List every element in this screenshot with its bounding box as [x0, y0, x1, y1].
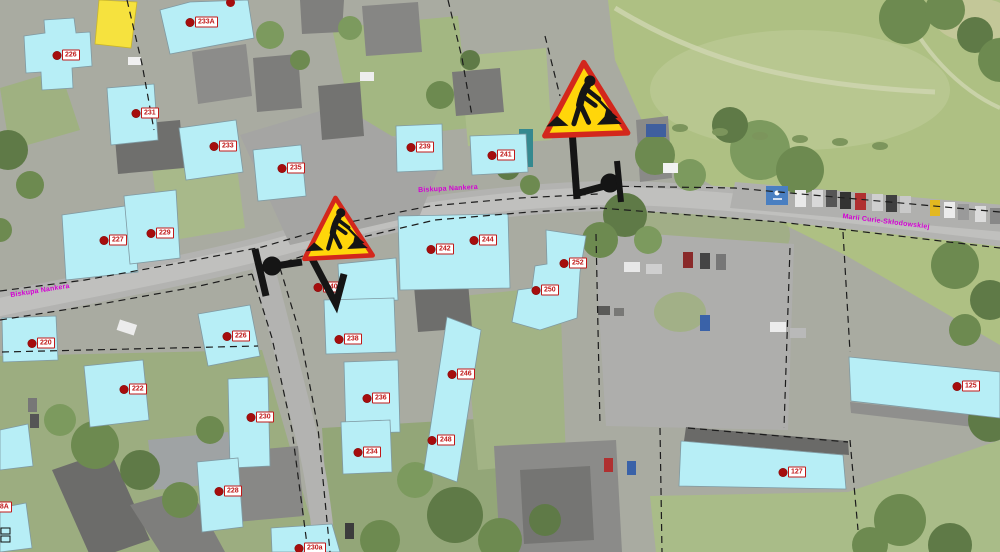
building-number-text: 233A: [195, 17, 218, 28]
building-number-text: 226: [62, 50, 80, 61]
building-point-icon: [779, 468, 787, 476]
aerial-background: [0, 0, 1000, 552]
building-number-text: 248: [437, 435, 455, 446]
building-number-text: 222: [129, 384, 147, 395]
building-point-icon: [448, 370, 456, 378]
building-number-text: 252: [569, 258, 587, 269]
building-number-text: 127: [788, 467, 806, 478]
roadworks-sign-icon: [297, 192, 376, 263]
building-number-text: 226: [232, 331, 250, 342]
building-label-230: 230: [247, 412, 274, 423]
building-label-18A: 18A: [0, 502, 12, 513]
building-label-250: 250: [532, 285, 559, 296]
roadworks-sign-icon: [538, 56, 633, 140]
building-number-text: 246: [457, 369, 475, 380]
building-point-icon: [247, 413, 255, 421]
building-label-220: 220: [28, 338, 55, 349]
building-point-icon: [363, 394, 371, 402]
building-label-226: 226: [223, 331, 250, 342]
building-label-233A: 233A: [186, 17, 218, 28]
building-number-text: 125: [962, 381, 980, 392]
building-number-text: 240: [323, 282, 341, 293]
building-number-text: 238: [344, 334, 362, 345]
building-number-text: 233: [219, 141, 237, 152]
building-number-text: 230: [256, 412, 274, 423]
building-point-icon: [120, 385, 128, 393]
building-number-text: 236: [372, 393, 390, 404]
building-point-icon: [223, 332, 231, 340]
building-label-125: 125: [953, 381, 980, 392]
building-number-text: 227: [109, 235, 127, 246]
building-label-238: 238: [335, 334, 362, 345]
building-point-icon: [488, 151, 496, 159]
building-number-text: 244: [479, 235, 497, 246]
building-label-240: 240: [314, 282, 341, 293]
building-point-icon: [953, 382, 961, 390]
building-number-text: 230a: [304, 543, 326, 552]
building-label-229: 229: [147, 228, 174, 239]
building-point-icon: [560, 259, 568, 267]
building-label-235: 235: [278, 163, 305, 174]
building-point-icon: [428, 436, 436, 444]
building-point-icon: [53, 51, 61, 59]
building-number-text: 241: [497, 150, 515, 161]
building-label-236: 236: [363, 393, 390, 404]
yellow-building-overlay: [95, 0, 137, 48]
building-label-234: 234: [354, 447, 381, 458]
building-point-icon: [215, 487, 223, 495]
building-number-text: 250: [541, 285, 559, 296]
building-label-127: 127: [779, 467, 806, 478]
building-number-text: 18A: [0, 502, 12, 513]
building-label-233: 233: [210, 141, 237, 152]
building-point-icon: [427, 245, 435, 253]
building-point-icon: [210, 142, 218, 150]
building-point-icon: [132, 109, 140, 117]
map-canvas[interactable]: 226233A231233235239241227229220222226228…: [0, 0, 1000, 552]
building-point-icon: [354, 448, 362, 456]
building-label-241: 241: [488, 150, 515, 161]
building-label-248: 248: [428, 435, 455, 446]
building-number-text: 235: [287, 163, 305, 174]
building-point-icon: [407, 143, 415, 151]
building-label-242: 242: [427, 244, 454, 255]
building-label-226: 226: [53, 50, 80, 61]
building-label-230a: 230a: [295, 543, 326, 552]
building-point-icon: [278, 164, 286, 172]
building-point-icon: [100, 236, 108, 244]
building-number-text: 220: [37, 338, 55, 349]
building-label-252: 252: [560, 258, 587, 269]
building-point-icon: [314, 283, 322, 291]
building-number-text: 234: [363, 447, 381, 458]
building-label-231: 231: [132, 108, 159, 119]
building-label-239: 239: [407, 142, 434, 153]
building-label-228: 228: [215, 486, 242, 497]
building-point-icon: [28, 339, 36, 347]
building-number-text: 228: [224, 486, 242, 497]
building-number-text: 231: [141, 108, 159, 119]
building-number-text: 239: [416, 142, 434, 153]
building-label-244: 244: [470, 235, 497, 246]
building-number-text: 242: [436, 244, 454, 255]
building-label-227: 227: [100, 235, 127, 246]
building-point-icon: [335, 335, 343, 343]
building-point-icon: [186, 18, 194, 26]
building-label-246: 246: [448, 369, 475, 380]
building-point-icon: [147, 229, 155, 237]
building-number-text: 229: [156, 228, 174, 239]
building-point-icon: [532, 286, 540, 294]
building-point-icon: [470, 236, 478, 244]
building-label-222: 222: [120, 384, 147, 395]
building-point-icon: [295, 544, 303, 552]
